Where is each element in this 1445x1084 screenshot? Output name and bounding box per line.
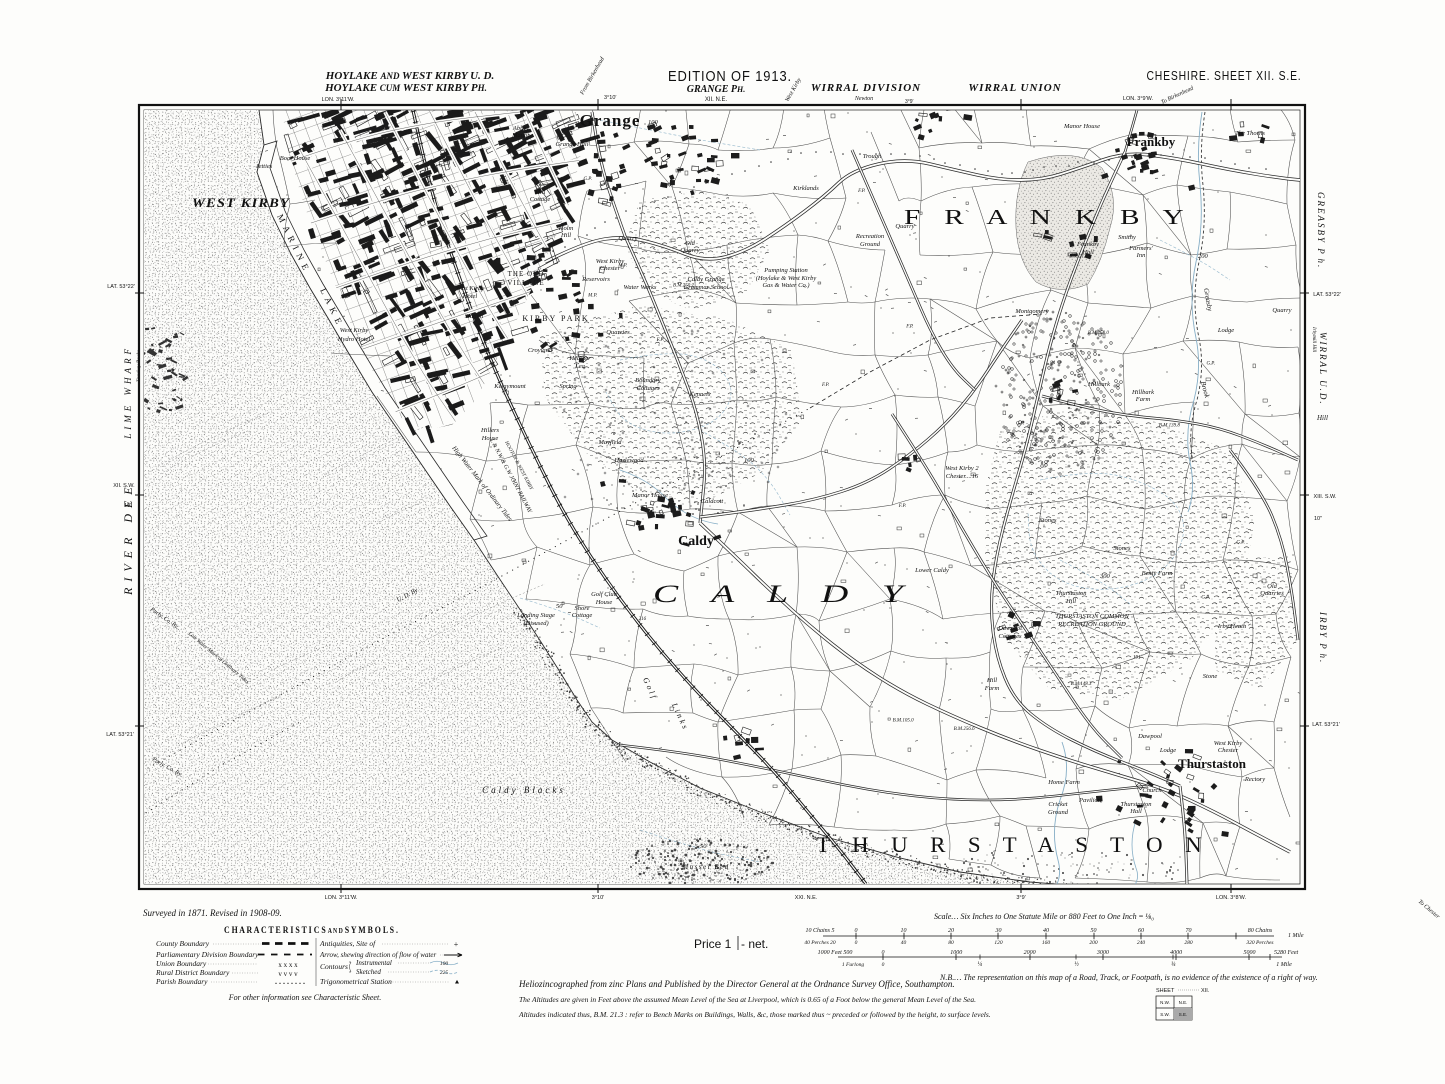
svg-text:Rectory: Rectory xyxy=(1244,776,1265,783)
svg-text:Cottage: Cottage xyxy=(572,612,593,619)
svg-text:Stones: Stones xyxy=(1114,545,1131,552)
svg-text:120: 120 xyxy=(994,940,1003,946)
svg-text:40: 40 xyxy=(901,939,907,946)
svg-text:Lower Caldy: Lower Caldy xyxy=(914,567,949,574)
svg-text:F.P.: F.P. xyxy=(656,338,664,343)
svg-text:Cricket: Cricket xyxy=(1048,801,1067,808)
svg-text:Old: Old xyxy=(685,240,696,247)
svg-text:Jetties: Jetties xyxy=(256,163,273,170)
svg-text:Kelgymount: Kelgymount xyxy=(493,383,526,390)
svg-text:B.M.148.3: B.M.148.3 xyxy=(1071,682,1092,687)
svg-text:160: 160 xyxy=(1042,940,1051,946)
svg-text:Thurstaston: Thurstaston xyxy=(1178,756,1247,771)
svg-text:Sketched: Sketched xyxy=(356,968,381,976)
svg-text:80 Chains: 80 Chains xyxy=(1248,928,1273,934)
svg-text:S.W.: S.W. xyxy=(1160,1012,1170,1017)
svg-text:West Kirby: West Kirby xyxy=(456,285,485,292)
svg-text:Benty Farm: Benty Farm xyxy=(1142,570,1173,577)
svg-text:5000: 5000 xyxy=(1243,950,1255,956)
svg-text:B.M.250.2: B.M.250.2 xyxy=(673,283,694,288)
svg-text:Trough: Trough xyxy=(863,153,882,160)
svg-text:Croyland: Croyland xyxy=(528,347,553,354)
svg-text:SHEET: SHEET xyxy=(1156,988,1175,994)
svg-text:240: 240 xyxy=(1137,939,1146,946)
svg-text:Kennels: Kennels xyxy=(689,391,711,398)
svg-text:LAT. 53°22′: LAT. 53°22′ xyxy=(1313,292,1341,298)
svg-text:House: House xyxy=(481,435,499,442)
svg-text:XII. N.E.: XII. N.E. xyxy=(705,97,728,103)
svg-text:XIII. S.W.: XIII. S.W. xyxy=(1314,494,1337,500)
svg-text:GREASBY P h.: GREASBY P h. xyxy=(1316,192,1326,269)
svg-text:Old: Old xyxy=(1267,583,1278,590)
svg-text:Boundary: Boundary xyxy=(635,377,661,384)
svg-text:Quarry: Quarry xyxy=(895,223,914,230)
svg-text:THE OLD: THE OLD xyxy=(508,270,545,278)
svg-text:RIVER DEE: RIVER DEE xyxy=(121,481,135,596)
svg-text:Ground: Ground xyxy=(1048,809,1069,816)
svg-text:Parliamentary Division Boundar: Parliamentary Division Boundary xyxy=(155,950,259,959)
svg-text:N.E.: N.E. xyxy=(1179,1000,1188,1005)
svg-text:Heather: Heather xyxy=(568,355,591,362)
svg-text:West Kirby: West Kirby xyxy=(340,327,369,334)
svg-text:Lodge: Lodge xyxy=(1159,747,1176,754)
svg-text:WIRRAL UNION: WIRRAL UNION xyxy=(968,82,1061,94)
svg-text:B.M.105.0: B.M.105.0 xyxy=(893,718,914,723)
svg-text:Dawpool: Dawpool xyxy=(997,625,1022,632)
svg-text:N.W.: N.W. xyxy=(1160,1000,1170,1005)
svg-text:Cottage: Cottage xyxy=(530,196,551,203)
svg-text:LAT. 53°21′: LAT. 53°21′ xyxy=(1312,722,1340,728)
svg-text:Caldcott: Caldcott xyxy=(701,498,724,505)
svg-text:Montgomery: Montgomery xyxy=(1014,308,1048,315)
svg-text:Hillbark: Hillbark xyxy=(1131,389,1154,396)
svg-text:Dawpool: Dawpool xyxy=(1137,733,1162,740)
svg-text:Kirklands: Kirklands xyxy=(792,185,819,192)
svg-text:Altitudes indicated thus, B.M.: Altitudes indicated thus, B.M. 21.3 : re… xyxy=(518,1010,991,1019)
svg-text:Farmers': Farmers' xyxy=(1128,245,1153,252)
svg-text:Union Boundary: Union Boundary xyxy=(156,959,207,968)
svg-text:XII.: XII. xyxy=(1201,988,1210,994)
svg-text:WIRRAL DIVISION: WIRRAL DIVISION xyxy=(811,82,921,94)
svg-text:Recreation: Recreation xyxy=(855,233,884,240)
svg-text:Rural District Boundary: Rural District Boundary xyxy=(155,968,230,977)
svg-text:C H A R A C T E R I S T I C S: C H A R A C T E R I S T I C S A N D S Y … xyxy=(224,926,398,936)
svg-text:¾: ¾ xyxy=(1171,962,1176,968)
svg-text:Stone: Stone xyxy=(1203,673,1218,680)
svg-text:Holm: Holm xyxy=(558,225,574,232)
svg-text:F.P.: F.P. xyxy=(898,504,906,509)
svg-text:Antiquities, Site of: Antiquities, Site of xyxy=(319,939,376,948)
svg-text:Golf Club: Golf Club xyxy=(591,591,618,598)
svg-text:Farm: Farm xyxy=(984,685,1000,692)
svg-text:Newton: Newton xyxy=(854,96,873,102)
svg-text:Irby Heath: Irby Heath xyxy=(1217,623,1246,630)
svg-text:Water Works: Water Works xyxy=(624,284,657,291)
svg-text:Church: Church xyxy=(1142,787,1161,794)
svg-text:Farm: Farm xyxy=(1135,396,1151,403)
svg-text:LON. 3°11′W.: LON. 3°11′W. xyxy=(322,97,355,103)
svg-text:- net.: - net. xyxy=(741,937,768,951)
svg-text:x x x x: x x x x xyxy=(278,961,298,969)
svg-text:LAT. 53°22′: LAT. 53°22′ xyxy=(107,284,135,290)
svg-text:GRANGE PH.: GRANGE PH. xyxy=(687,84,746,95)
svg-text:20: 20 xyxy=(948,928,954,934)
svg-text:½: ½ xyxy=(1074,961,1079,968)
svg-text:100: 100 xyxy=(440,961,449,967)
svg-text:Surveyed in 1871. Revised i: Surveyed in 1871. Revised in 1908-09. xyxy=(143,908,282,918)
svg-text:Shore: Shore xyxy=(575,605,590,612)
svg-text:Manor House: Manor House xyxy=(1063,123,1100,130)
svg-text:B.M.139.8: B.M.139.8 xyxy=(1159,424,1180,429)
svg-text:1 Furlong: 1 Furlong xyxy=(842,962,864,968)
svg-text:10: 10 xyxy=(901,928,907,934)
svg-text:Ground: Ground xyxy=(860,241,881,248)
svg-text:F.P.: F.P. xyxy=(905,325,913,330)
svg-text:Pumping Station: Pumping Station xyxy=(763,267,808,274)
svg-text:Arrow, shewing direction of fl: Arrow, shewing direction of flow of wate… xyxy=(319,951,436,959)
svg-text:Cottages: Cottages xyxy=(998,633,1022,640)
svg-text:IRBY P h.: IRBY P h. xyxy=(1318,611,1328,664)
svg-text:Irbymill Hill: Irbymill Hill xyxy=(1311,326,1316,353)
svg-text:Landing Stage: Landing Stage xyxy=(516,612,555,619)
svg-text:84: 84 xyxy=(1050,361,1056,366)
svg-text:House: House xyxy=(595,599,613,606)
svg-text:Caldy Blacks: Caldy Blacks xyxy=(482,785,566,795)
svg-text:3°9′: 3°9′ xyxy=(1016,895,1025,901)
svg-text:1000 Feet 500: 1000 Feet 500 xyxy=(818,950,853,956)
svg-text:0: 0 xyxy=(855,940,858,946)
svg-text:S.E.: S.E. xyxy=(1179,1012,1188,1017)
svg-text:M.P.: M.P. xyxy=(587,293,597,298)
svg-text:Quarry: Quarry xyxy=(680,247,699,254)
svg-text:Instrumental: Instrumental xyxy=(355,959,392,967)
svg-text:Lea: Lea xyxy=(574,363,585,370)
svg-text:60: 60 xyxy=(1138,928,1144,934)
svg-text:Grange Hall: Grange Hall xyxy=(555,141,588,148)
svg-text:G.P.: G.P. xyxy=(1016,422,1025,427)
svg-text:Hall: Hall xyxy=(1129,808,1142,815)
svg-text:10 Chains 5: 10 Chains 5 xyxy=(805,928,834,934)
svg-text:KIRBY PARK: KIRBY PARK xyxy=(522,314,589,323)
svg-text:Reservoirs: Reservoirs xyxy=(581,276,610,283)
svg-text:0: 0 xyxy=(855,928,858,934)
svg-text:5280 Feet: 5280 Feet xyxy=(1274,950,1298,956)
svg-text:For other information see Char: For other information see Characteristic… xyxy=(228,993,381,1002)
svg-text:B.M.250.0: B.M.250.0 xyxy=(1088,331,1109,336)
svg-text:40 Perches 20: 40 Perches 20 xyxy=(804,939,836,946)
svg-text:LON. 3°9′W.: LON. 3°9′W. xyxy=(1123,96,1154,102)
svg-text:Abbey: Abbey xyxy=(512,125,529,132)
svg-text:Quarry: Quarry xyxy=(618,235,637,242)
svg-text:10″: 10″ xyxy=(124,503,132,509)
svg-text:Cottages: Cottages xyxy=(636,385,660,392)
svg-text:300: 300 xyxy=(1099,573,1111,580)
svg-text:M.P.: M.P. xyxy=(617,264,627,269)
svg-text:Mayfield: Mayfield xyxy=(597,439,622,446)
svg-text:Pavilion: Pavilion xyxy=(1078,797,1101,804)
svg-text:Trigonometrical Station: Trigonometrical Station xyxy=(320,977,392,986)
svg-text:Hazlewood: Hazlewood xyxy=(613,457,644,464)
svg-text:3°10′: 3°10′ xyxy=(592,895,604,901)
svg-text:B.M.256.6: B.M.256.6 xyxy=(954,727,975,732)
svg-text:Hillers: Hillers xyxy=(480,427,500,434)
svg-text:WEST KIRBY: WEST KIRBY xyxy=(192,195,290,210)
svg-text:G.P.: G.P. xyxy=(1206,361,1215,366)
svg-text:Hillbark: Hillbark xyxy=(1087,381,1110,388)
svg-text:200: 200 xyxy=(1089,940,1098,946)
svg-text:4000: 4000 xyxy=(1170,949,1182,956)
svg-text:N.B.… The representation on th: N.B.… The representation on this map of … xyxy=(939,973,1318,982)
svg-text:Hill: Hill xyxy=(986,677,997,684)
svg-text:Boat House: Boat House xyxy=(280,155,311,162)
svg-text:Caldy Grange: Caldy Grange xyxy=(687,276,724,283)
svg-text:(Disused): (Disused) xyxy=(523,620,548,627)
svg-text:. . . . . .: . . . . . . . . xyxy=(275,977,305,986)
svg-text:XII. S.W.: XII. S.W. xyxy=(113,483,135,489)
svg-text:B.M.212.3: B.M.212.3 xyxy=(1069,254,1090,259)
svg-text:1 Mile: 1 Mile xyxy=(1288,933,1304,939)
svg-text:Mussel Bed: Mussel Bed xyxy=(681,863,729,871)
svg-text:50: 50 xyxy=(1091,928,1097,934)
svg-text:1000: 1000 xyxy=(950,950,962,956)
svg-text:Scale… Six Inches to One Statu: Scale… Six Inches to One Statute Mile or… xyxy=(934,912,1154,921)
svg-text:F.P.: F.P. xyxy=(821,383,829,388)
svg-text:LON. 3°11′W.: LON. 3°11′W. xyxy=(325,895,358,901)
svg-text:Heliozincographed from zinc Pl: Heliozincographed from zinc Plans and Pu… xyxy=(518,979,955,989)
svg-text:Contours: Contours xyxy=(320,962,348,971)
svg-text:+: + xyxy=(454,940,459,949)
svg-text:Mill: Mill xyxy=(534,189,546,196)
svg-text:50: 50 xyxy=(700,843,707,850)
svg-text:West Kirby: West Kirby xyxy=(1214,740,1243,747)
svg-text:Quarries: Quarries xyxy=(606,329,630,336)
svg-text:Manor House: Manor House xyxy=(631,492,668,499)
svg-text:2000: 2000 xyxy=(1024,950,1036,956)
svg-text:Frankby: Frankby xyxy=(1127,134,1176,149)
svg-text:Manor: Manor xyxy=(511,132,530,139)
svg-text:CHESHIRE. SHEET XII. S.E.: CHESHIRE. SHEET XII. S.E. xyxy=(1147,68,1302,83)
svg-text:10″: 10″ xyxy=(1314,516,1322,522)
svg-text:G.P.: G.P. xyxy=(583,177,592,182)
svg-text:Hill: Hill xyxy=(560,232,571,239)
svg-text:70: 70 xyxy=(1186,928,1192,934)
svg-text:RECREATION GROUND: RECREATION GROUND xyxy=(1057,621,1126,628)
svg-text:Gas & Water Co.): Gas & Water Co.) xyxy=(762,282,809,289)
svg-text:0: 0 xyxy=(882,962,885,968)
svg-text:WIRRAL U.D.: WIRRAL U.D. xyxy=(1318,332,1328,406)
svg-text:THURSTASTON COMMON: THURSTASTON COMMON xyxy=(1055,613,1129,620)
svg-text:1 Mile: 1 Mile xyxy=(1276,962,1292,968)
svg-text:Quarries: Quarries xyxy=(1260,590,1284,597)
svg-text:Parish Boundary: Parish Boundary xyxy=(155,977,208,986)
svg-text:LON. 3°8′W.: LON. 3°8′W. xyxy=(1216,895,1247,901)
svg-text:216: 216 xyxy=(639,617,647,622)
svg-text:The Altitudes are given in Fee: The Altitudes are given in Feet above th… xyxy=(519,995,976,1004)
svg-text:Chester....16: Chester....16 xyxy=(946,473,979,480)
svg-text:XXI. N.E.: XXI. N.E. xyxy=(795,895,818,901)
svg-text:HOYLAKE CUM WEST KIRBY PH.: HOYLAKE CUM WEST KIRBY PH. xyxy=(324,82,487,94)
svg-text:Thurstaston: Thurstaston xyxy=(1120,801,1151,808)
svg-text:Hydro Hotel: Hydro Hotel xyxy=(337,336,371,343)
svg-text:191: 191 xyxy=(1133,655,1141,660)
svg-text:Lodge: Lodge xyxy=(1217,327,1234,334)
svg-text:3°10′: 3°10′ xyxy=(604,95,616,101)
svg-text:Hill: Hill xyxy=(1065,598,1076,605)
svg-text:T H U R S T A S T O N: T H U R S T A S T O N xyxy=(816,832,1210,857)
svg-text:Caldy: Caldy xyxy=(678,534,714,549)
svg-text:225: 225 xyxy=(440,970,449,976)
svg-text:Spring: Spring xyxy=(559,383,577,390)
svg-text:Hill: Hill xyxy=(1316,414,1328,422)
svg-text:G.P.: G.P. xyxy=(1236,541,1245,546)
svg-text:30: 30 xyxy=(995,928,1002,934)
svg-text:The Thorns: The Thorns xyxy=(1235,130,1265,137)
svg-text:320 Perches: 320 Perches xyxy=(1245,940,1273,946)
svg-text:Home Farm: Home Farm xyxy=(1047,779,1080,786)
svg-text:Chester: Chester xyxy=(1218,747,1239,754)
svg-text:F R A N K B Y: F R A N K B Y xyxy=(904,205,1192,229)
svg-text:40: 40 xyxy=(1043,927,1049,934)
svg-text:EDITION OF 1913.: EDITION OF 1913. xyxy=(668,69,792,85)
svg-text:F.P.: F.P. xyxy=(857,189,865,194)
svg-text:(Hoylake & West Kirby: (Hoylake & West Kirby xyxy=(756,275,817,282)
svg-text:G.P.: G.P. xyxy=(1201,595,1210,600)
svg-text:80: 80 xyxy=(948,940,954,946)
svg-text:Stones: Stones xyxy=(1040,517,1057,524)
svg-text:280: 280 xyxy=(1184,940,1193,946)
svg-text:Hotel: Hotel xyxy=(462,293,478,300)
svg-text:LAT. 53°21′: LAT. 53°21′ xyxy=(106,732,134,738)
svg-text:VILLAGE: VILLAGE xyxy=(507,279,544,287)
svg-text:Frankby: Frankby xyxy=(1076,241,1099,248)
svg-text:HOYLAKE AND WEST KIRBY U. D.: HOYLAKE AND WEST KIRBY U. D. xyxy=(325,70,494,82)
svg-text:County Boundary: County Boundary xyxy=(156,939,210,948)
svg-text:Smithy: Smithy xyxy=(1118,234,1136,241)
svg-text:Grange: Grange xyxy=(580,111,641,130)
svg-text:200: 200 xyxy=(1198,253,1209,260)
svg-text:100: 100 xyxy=(744,457,755,464)
svg-text:50: 50 xyxy=(556,603,563,610)
svg-text:Quarry: Quarry xyxy=(1272,307,1291,314)
svg-text:Thurstaston: Thurstaston xyxy=(1055,590,1086,597)
svg-text:¼: ¼ xyxy=(978,962,983,968)
svg-text:C A L D Y: C A L D Y xyxy=(653,581,915,608)
svg-text:Price 1: Price 1 xyxy=(694,937,732,951)
svg-text:3000: 3000 xyxy=(1096,950,1109,956)
svg-text:Inn: Inn xyxy=(1136,252,1146,259)
svg-text:West Kirby 2: West Kirby 2 xyxy=(945,465,979,472)
svg-text:Station: Station xyxy=(465,313,483,320)
